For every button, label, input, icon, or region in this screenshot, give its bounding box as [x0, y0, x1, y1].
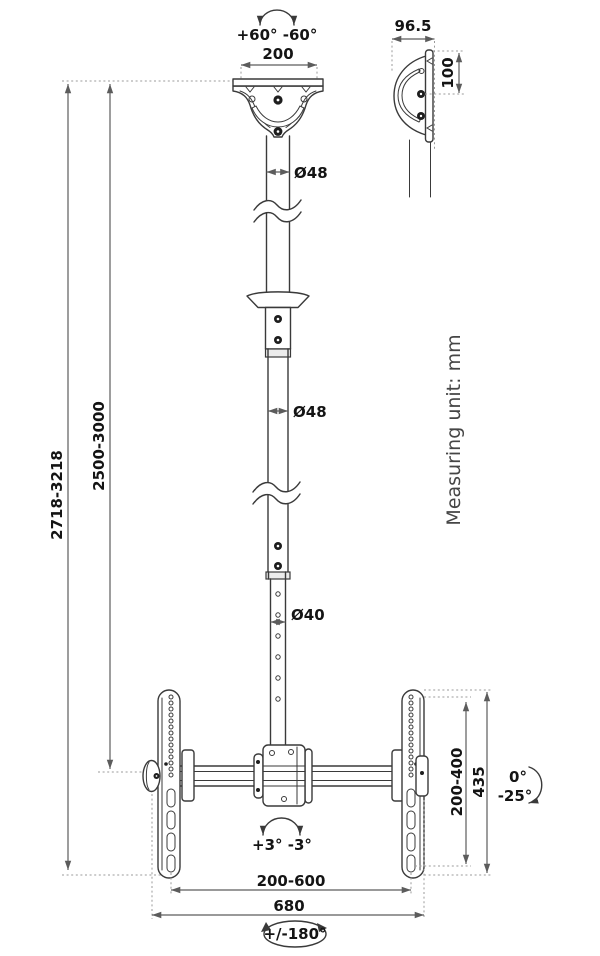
telescopic-collar	[247, 292, 309, 308]
tv-ceiling-mount-technical-drawing: 2718-3218 2500-3000 +60° -60° 200 Ø48	[0, 0, 600, 956]
vesa-width-dimension: 200-600	[171, 872, 411, 894]
ceiling-mount-front-view: +60° -60° 200	[233, 10, 323, 137]
overall-height-dimension: 2718-3218	[48, 84, 68, 870]
tilt-up-label: 0°	[509, 768, 527, 786]
bottom-swivel-indicator: +/-180°	[261, 921, 327, 947]
ceiling-plate	[233, 79, 323, 86]
ceiling-mount-side-view: 96.5 100	[392, 17, 464, 197]
swivel-arc-top	[260, 10, 294, 25]
pole-height-label: 2500-3000	[90, 401, 108, 491]
total-width-dimension: 680	[152, 794, 424, 919]
coupler-ring	[266, 572, 290, 579]
side-hole-spacing-label: 100	[439, 57, 457, 88]
pole-assembly: Ø48 Ø48 Ø40	[247, 136, 328, 746]
left-bracket-arm	[158, 690, 180, 878]
top-swivel-label: +60° -60°	[237, 26, 318, 44]
clamp-ring	[266, 349, 291, 357]
total-width-label: 680	[273, 897, 304, 915]
bottom-swivel-label: +/-180°	[263, 925, 326, 943]
side-depth-label: 96.5	[394, 17, 431, 35]
level-adjust-label: +3° -3°	[252, 836, 312, 854]
tilt-down-label: -25°	[498, 787, 533, 805]
overall-height-label: 2718-3218	[48, 450, 66, 540]
right-end-flange	[416, 756, 428, 796]
vesa-height-label: 200-400	[448, 748, 466, 817]
measuring-unit-note: Measuring unit: mm	[443, 334, 465, 525]
left-rail-clamp	[182, 750, 194, 801]
lower-diameter-label: Ø40	[291, 606, 325, 624]
drawing-canvas: 2718-3218 2500-3000 +60° -60° 200 Ø48	[0, 0, 600, 956]
vesa-width-label: 200-600	[257, 872, 326, 890]
middle-diameter-label: Ø48	[293, 403, 327, 421]
tilt-block	[254, 745, 312, 806]
level-adjust-indicator: +3° -3°	[252, 818, 312, 854]
tilt-block-shoulder	[305, 749, 312, 803]
pole-height-dimension: 2500-3000	[90, 84, 149, 772]
plate-height-label: 435	[470, 766, 488, 797]
adjustment-knob	[143, 761, 160, 792]
upper-diameter-label: Ø48	[294, 164, 328, 182]
tilt-indicator: 0° -25°	[498, 767, 542, 805]
plate-width-label: 200	[262, 45, 293, 63]
